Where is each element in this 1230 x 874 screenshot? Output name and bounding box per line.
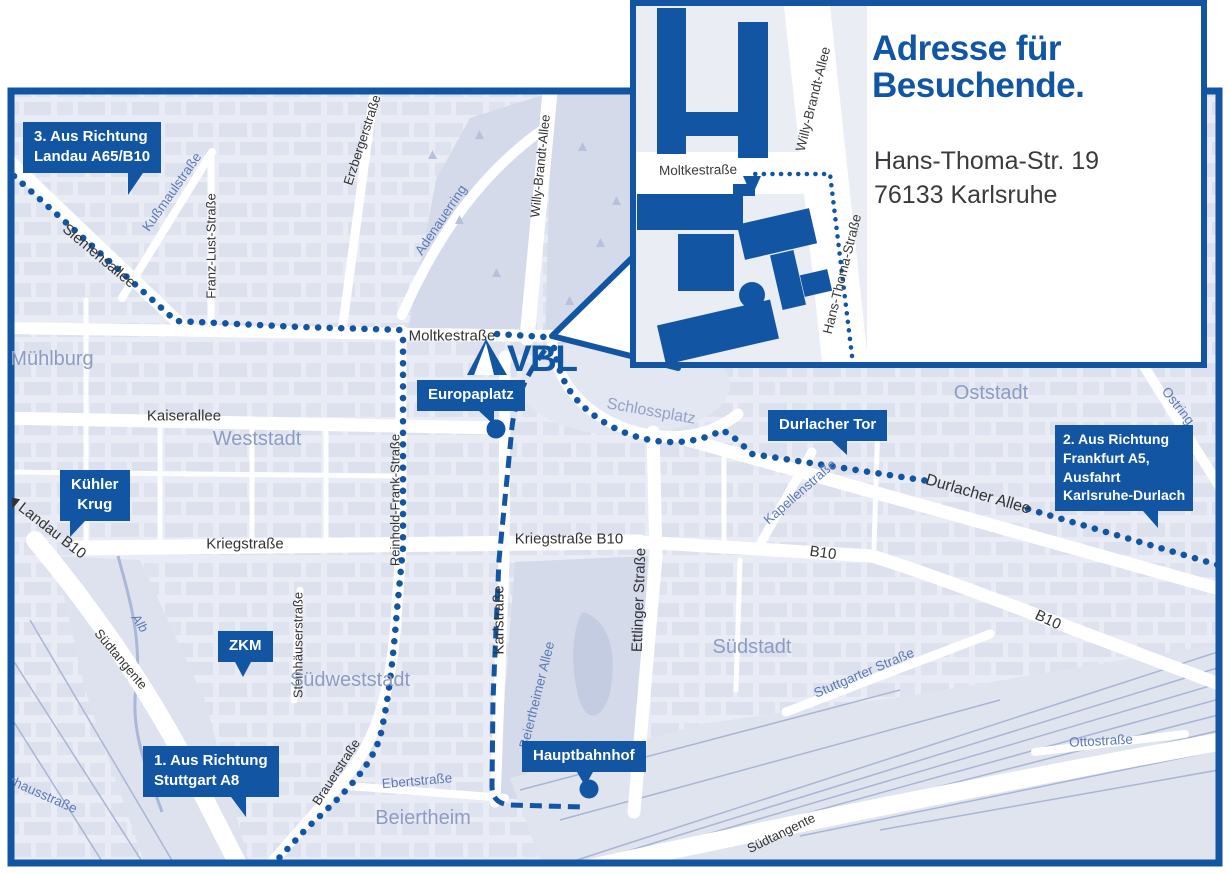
street-label: B10 (809, 544, 838, 563)
callout-text: Europaplatz (428, 386, 514, 403)
callout-durlacher-tor: Durlacher Tor (768, 410, 887, 441)
street-label: Ottostraße (1069, 733, 1133, 750)
callout-zkm: ZKM (218, 631, 273, 662)
callout-route-2: 2. Aus Richtung Frankfurt A5, Ausfahrt K… (1055, 425, 1193, 511)
street-label: Stuttgarter Straße (812, 646, 916, 700)
street-label: Kriegstraße (206, 537, 284, 552)
area-label: Mühlburg (10, 349, 93, 369)
area-label: Schlossplatz (605, 396, 696, 427)
street-label: Franz-Lust-Straße (205, 193, 218, 298)
street-label: Beiertheimer Allee (517, 640, 557, 750)
vbl-logo: VBL (467, 339, 577, 375)
street-label: Südtangente (92, 627, 149, 692)
callout-text: 2. Aus Richtung Frankfurt A5, Ausfahrt K… (1063, 431, 1185, 503)
street-label: B10 (1033, 608, 1064, 633)
inset-street-label: Moltkestraße (659, 162, 737, 178)
street-label: Ebertstraße (381, 771, 452, 791)
street-label: Kapellenstraße (761, 457, 838, 527)
street-label: Brauerstraße (310, 737, 362, 808)
street-label: Ettlinger Straße (630, 548, 649, 653)
street-label: Kriegstraße B10 (515, 532, 623, 547)
street-label: Kaiserallee (147, 409, 221, 424)
callout-route-1: 1. Aus Richtung Stuttgart A8 (143, 746, 279, 797)
vbl-logo-text: VBL (507, 342, 577, 375)
callout-text: 3. Aus Richtung Landau A65/B10 (34, 128, 150, 165)
area-label: Beiertheim (375, 808, 471, 828)
street-label: Adenauerring (413, 183, 470, 258)
street-label: Südtangente (745, 811, 817, 855)
callout-kuehler-krug: Kühler Krug (60, 470, 130, 521)
callout-text: ZKM (229, 637, 262, 654)
inset-title: Adresse für Besuchende. (872, 30, 1084, 105)
callout-text: Hauptbahnhof (533, 747, 635, 764)
street-label: Siemensallee (60, 221, 139, 290)
callout-text: 1. Aus Richtung Stuttgart A8 (154, 752, 268, 789)
street-label: Ostring (1159, 385, 1196, 428)
callout-text: Kühler Krug (71, 476, 119, 513)
callout-hauptbahnhof: Hauptbahnhof (522, 741, 646, 772)
street-label: Karlstraße (492, 585, 507, 654)
callout-text: Durlacher Tor (779, 416, 876, 433)
inset-address: Hans-Thoma-Str. 19 76133 Karlsruhe (874, 145, 1099, 213)
street-label: Durlacher Allee (924, 472, 1033, 517)
area-label: Südweststadt (290, 670, 410, 690)
street-label: Reinhold-Frank-Straße (389, 434, 402, 566)
callout-route-3: 3. Aus Richtung Landau A65/B10 (23, 122, 161, 173)
area-label: Weststadt (213, 429, 302, 449)
inset-address-panel: Moltkestraße Willy-Brandt-Allee Hans-Tho… (630, 0, 1207, 368)
vbl-triangle-icon (467, 339, 507, 375)
street-label: Erzbergerstraße (341, 93, 382, 186)
callout-europaplatz: Europaplatz (417, 380, 525, 411)
street-label: Willy-Brandt-Allee (528, 114, 552, 218)
area-label: Oststadt (954, 383, 1028, 403)
street-label: Alb (129, 612, 150, 635)
area-label: Südstadt (713, 637, 792, 657)
